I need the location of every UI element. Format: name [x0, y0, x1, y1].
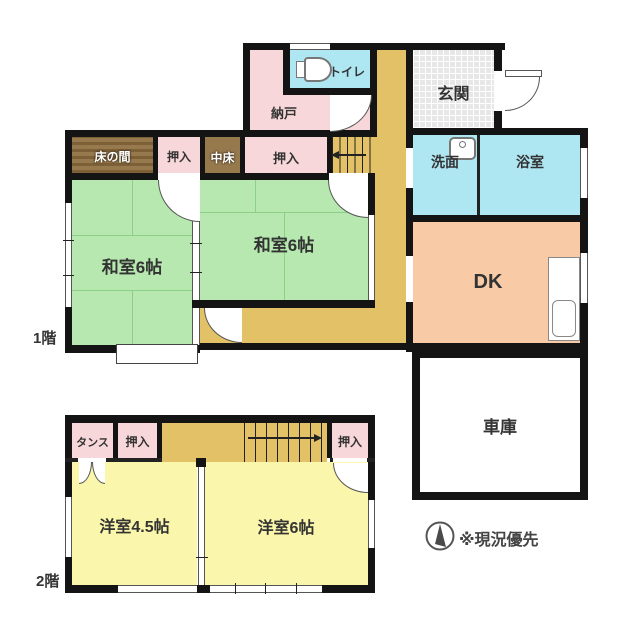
- window: [65, 497, 72, 557]
- tatami-line: [72, 235, 192, 236]
- wall: [243, 130, 377, 137]
- room-label-oshiire-d: 押入: [332, 433, 368, 450]
- sink-icon: [459, 141, 466, 148]
- door-opening: [158, 173, 200, 180]
- room-label-nando: 納戸: [254, 103, 314, 122]
- wall-partition: [477, 135, 480, 215]
- note-text: ※現況優先: [459, 526, 539, 550]
- wall: [406, 128, 588, 135]
- wall: [406, 215, 588, 222]
- stair-arrow-right-icon: [248, 437, 314, 439]
- room-label-oshiire-a: 押入: [158, 148, 200, 165]
- window-tick: [63, 240, 74, 241]
- window-tick: [296, 583, 297, 594]
- kitchen-counter-icon: [552, 300, 576, 337]
- tatami-line: [255, 180, 256, 212]
- room-label-senmen: 洗面: [413, 152, 477, 172]
- door-opening: [406, 256, 413, 302]
- floor2-label: 2階: [36, 570, 59, 591]
- wall: [196, 458, 206, 467]
- wall: [243, 43, 250, 137]
- wall: [65, 130, 243, 137]
- window: [580, 148, 588, 198]
- window: [210, 585, 322, 593]
- sliding-door-fusuma: [192, 308, 200, 345]
- room-label-shako: 車庫: [412, 413, 588, 438]
- window-tick: [265, 583, 266, 594]
- room-label-yoshitsu-b: 洋室6帖: [204, 514, 368, 538]
- door-opening: [406, 148, 413, 188]
- room-label-washitsu-b: 和室6帖: [200, 231, 368, 256]
- room-label-tokonoma: 床の間: [72, 148, 153, 165]
- wall: [406, 43, 413, 352]
- door-opening: [494, 71, 502, 111]
- window: [118, 585, 197, 593]
- sliding-door-fusuma: [192, 213, 200, 300]
- stair-arrow-left-icon: [331, 151, 339, 159]
- tatami-line: [132, 180, 133, 235]
- sliding-door-fusuma: [368, 215, 375, 300]
- room-label-oshiire-b: 押入: [245, 148, 327, 167]
- room-label-washitsu-a: 和室6帖: [72, 253, 192, 278]
- room-label-oshiire-c: 押入: [118, 433, 157, 450]
- corridor-vertical: [375, 50, 406, 343]
- wall: [195, 343, 413, 350]
- floor-plan: トイレ 納戸 玄関 床の間 押入 中床 押入 洗面 浴室 和室6帖 和室6帖 D…: [0, 0, 640, 640]
- room-label-nakadoko: 中床: [205, 149, 240, 166]
- wall: [283, 88, 373, 95]
- window-tick: [196, 557, 208, 558]
- entrance-door-leaf: [505, 70, 542, 77]
- room-label-tansu: タンス: [72, 434, 113, 450]
- compass-icon: [425, 521, 455, 551]
- floor1-label: 1階: [33, 327, 56, 348]
- room-label-toilet: トイレ: [324, 63, 370, 80]
- stairs-2f: [244, 423, 327, 462]
- window: [580, 253, 588, 303]
- entrance-door-arc: [505, 77, 540, 111]
- stair-arrow-left-icon: [338, 154, 366, 156]
- door-opening: [333, 458, 367, 462]
- bay-window: [116, 344, 198, 364]
- room-label-genkan: 玄関: [413, 80, 494, 104]
- room-label-dk: DK: [413, 271, 563, 294]
- wall: [65, 415, 375, 423]
- wall: [192, 300, 375, 308]
- stair-arrow-right-icon: [314, 434, 322, 442]
- tatami-line: [284, 212, 285, 300]
- window: [368, 500, 375, 548]
- room-label-yokushitsu: 浴室: [480, 152, 580, 172]
- room-yokushitsu: [480, 135, 580, 215]
- window: [290, 43, 330, 50]
- room-label-yoshitsu-a: 洋室4.5帖: [72, 513, 197, 537]
- wall: [157, 423, 162, 458]
- wall: [406, 343, 588, 350]
- door-opening: [329, 173, 368, 180]
- window-tick: [235, 583, 236, 594]
- window: [65, 203, 72, 307]
- tatami-line: [132, 290, 133, 345]
